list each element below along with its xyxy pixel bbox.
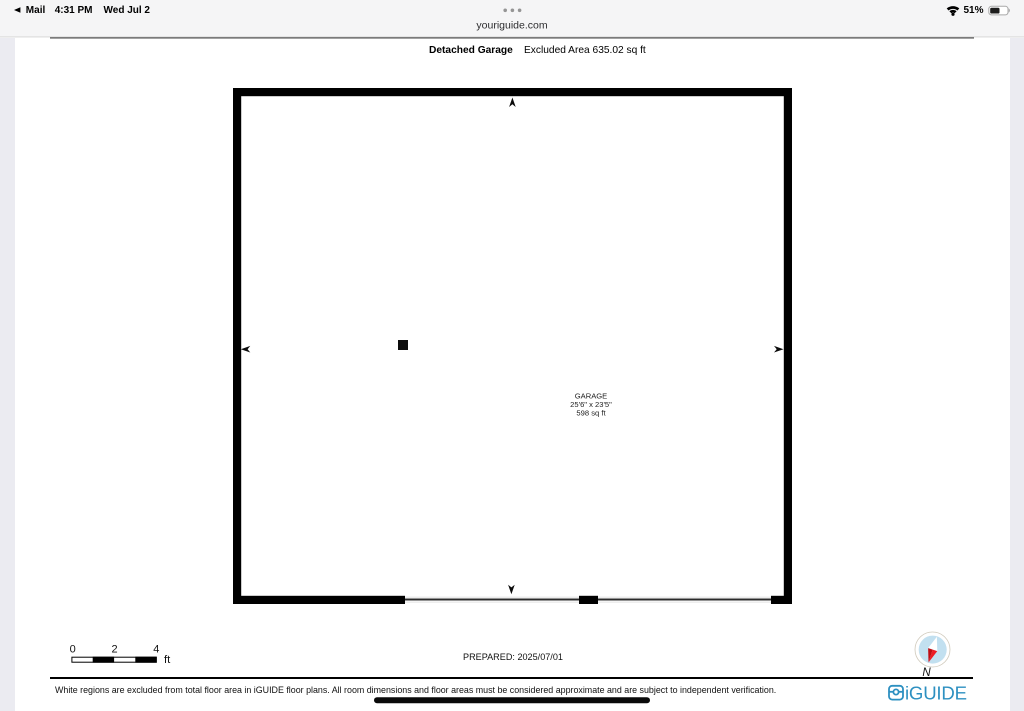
svg-text:Mail: Mail bbox=[26, 5, 46, 16]
svg-text:4: 4 bbox=[153, 643, 159, 655]
svg-text:White regions are excluded fro: White regions are excluded from total fl… bbox=[55, 685, 776, 695]
svg-text:Wed Jul 2: Wed Jul 2 bbox=[104, 5, 151, 16]
svg-text:Excluded Area 635.02 sq ft: Excluded Area 635.02 sq ft bbox=[524, 45, 646, 56]
svg-text:PREPARED: 2025/07/01: PREPARED: 2025/07/01 bbox=[463, 652, 563, 662]
svg-text:iGUIDE: iGUIDE bbox=[905, 683, 967, 704]
svg-text:51%: 51% bbox=[964, 5, 984, 16]
svg-text:ft: ft bbox=[164, 654, 171, 666]
svg-text:598 sq ft: 598 sq ft bbox=[576, 409, 606, 418]
svg-text:Detached Garage: Detached Garage bbox=[429, 45, 513, 56]
svg-text:0: 0 bbox=[70, 643, 76, 655]
svg-text:4:31 PM: 4:31 PM bbox=[55, 5, 93, 16]
svg-text:youriguide.com: youriguide.com bbox=[476, 20, 547, 32]
svg-text:2: 2 bbox=[111, 643, 117, 655]
